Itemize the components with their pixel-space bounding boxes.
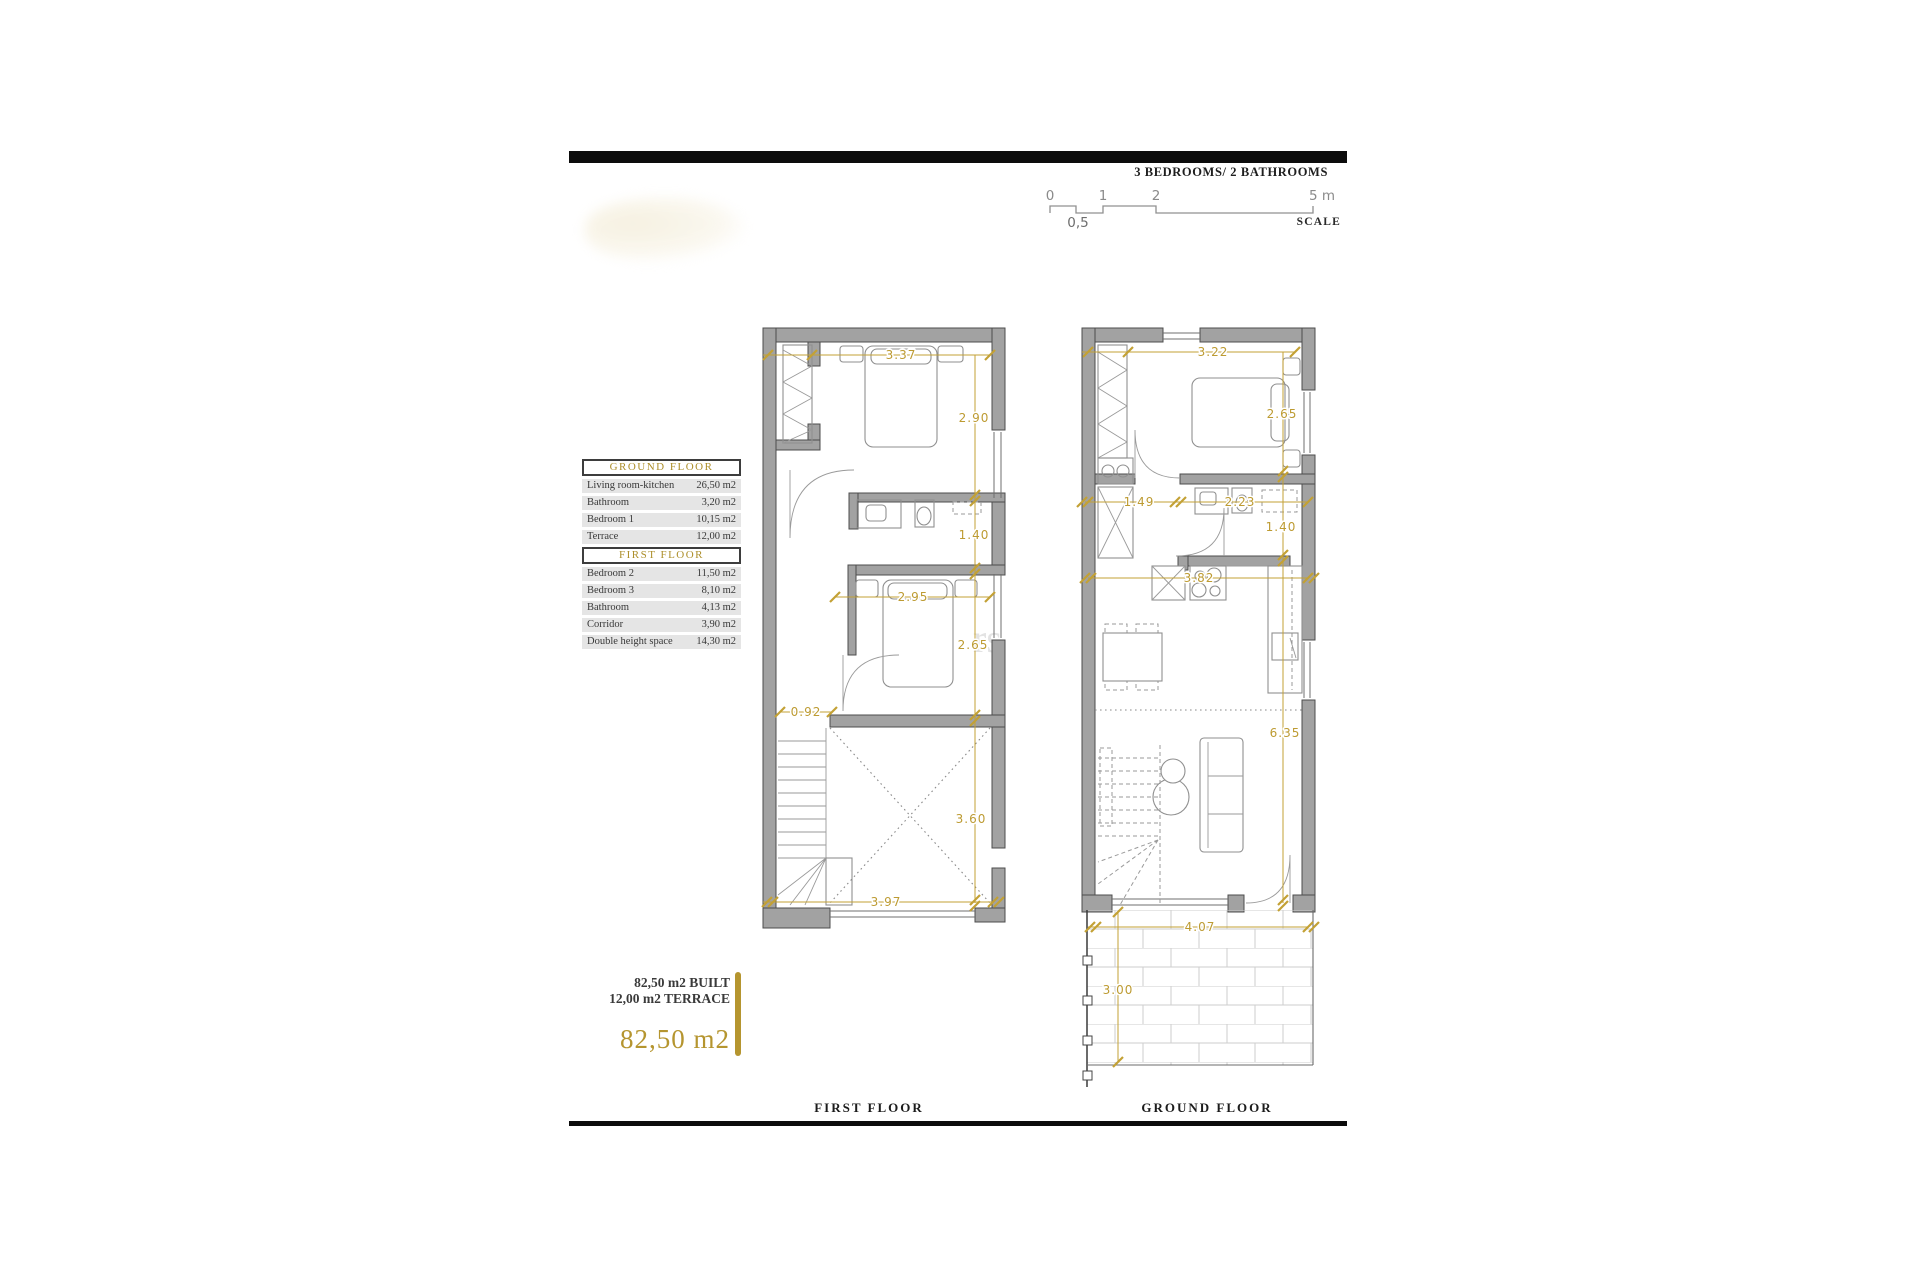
ground-floor-plan: 3.22 2.65 1.49 2.23 1.40 3.82 6.35 4.07 …: [1077, 328, 1319, 1087]
dim-label: 2.65: [1267, 407, 1298, 421]
dim-label: 3.60: [956, 812, 987, 826]
wardrobe-bedroom1: [1098, 345, 1133, 484]
dim-label: 2.90: [959, 411, 990, 425]
dim-label: 2.65: [958, 638, 989, 652]
dim-label: 1.49: [1124, 495, 1155, 509]
dim-label: 0.92: [791, 705, 822, 719]
dim-label: 3.22: [1198, 345, 1229, 359]
floorplan-drawing: rs: [0, 0, 1920, 1280]
dim-label: 4.07: [1185, 920, 1216, 934]
dim-label: 3.82: [1184, 571, 1215, 585]
kitchen: [1152, 566, 1302, 693]
dim-label: 2.23: [1225, 495, 1256, 509]
dim-label: 3.37: [886, 348, 917, 362]
dim-label: 2.95: [898, 590, 929, 604]
floorplan-page: 3 BEDROOMS/ 2 BATHROOMS 0 1 2 5 m 0,5 SC…: [0, 0, 1920, 1280]
dim-label: 1.40: [1266, 520, 1297, 534]
first-floor-plan: 3.37 2.90 1.40 2.95 2.65 0.92 3.60 3.97: [762, 328, 1005, 928]
scale-ruler: [1050, 206, 1313, 213]
dim-label: 6.35: [1270, 726, 1301, 740]
dining-set: [1103, 624, 1162, 690]
staircase-ground-floor: [1098, 745, 1160, 905]
sofa: [1200, 738, 1243, 852]
coffee-tables: [1153, 759, 1189, 815]
dim-label: 3.00: [1103, 983, 1134, 997]
bathroom-first-floor: [857, 500, 981, 528]
dim-label: 3.97: [871, 895, 902, 909]
dim-label: 1.40: [959, 528, 990, 542]
staircase-first-floor: [778, 728, 852, 905]
